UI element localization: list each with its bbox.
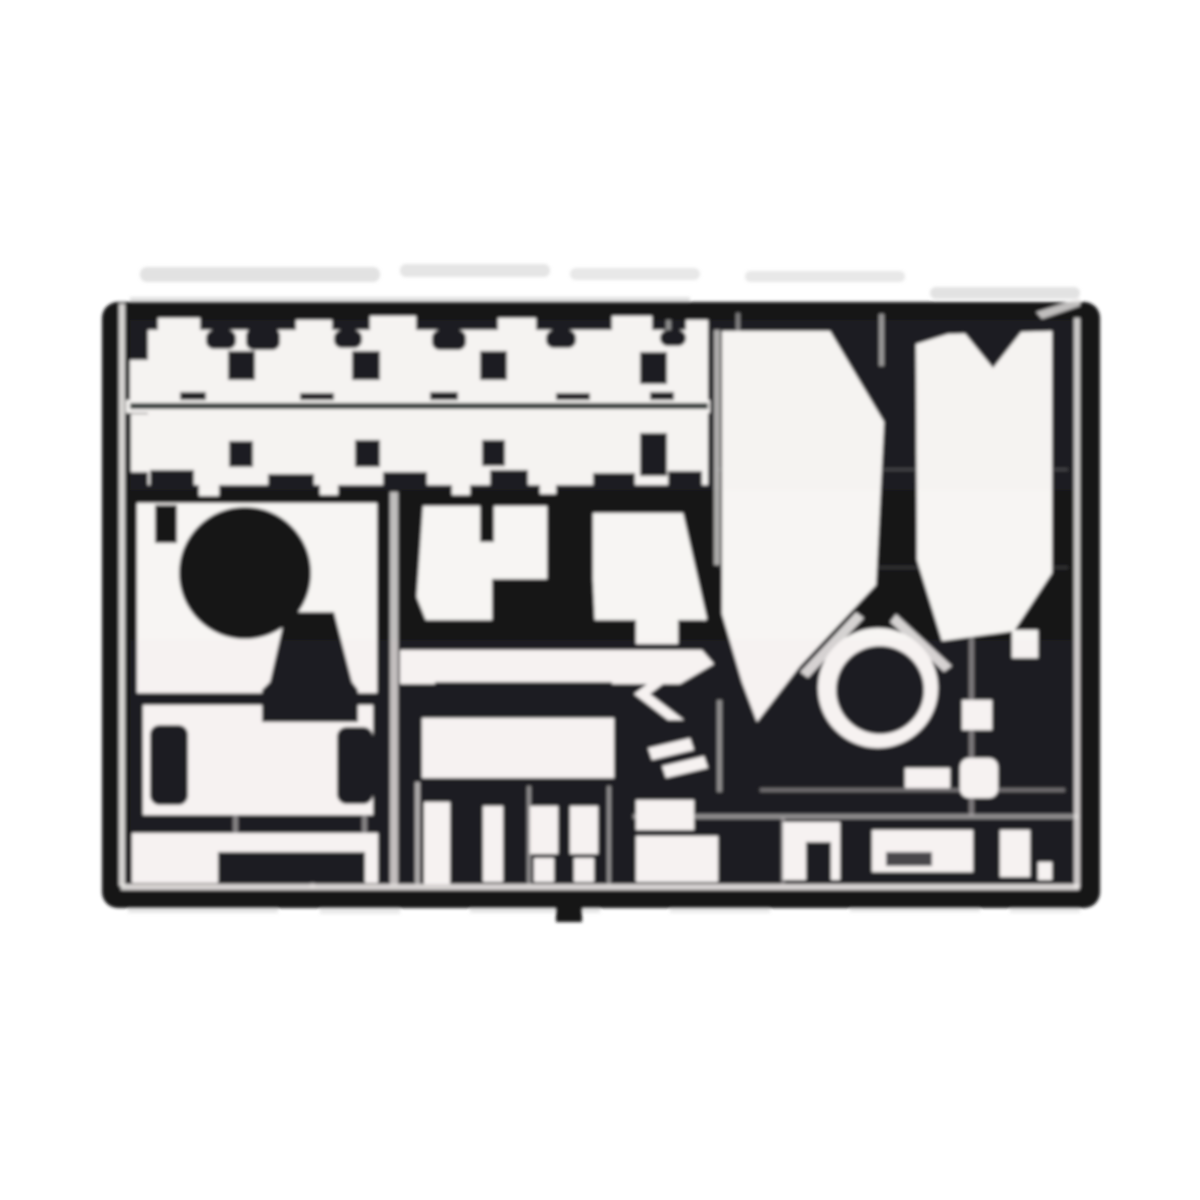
fret-shapes-group xyxy=(102,264,1100,922)
scan-noise-top-1 xyxy=(140,267,380,282)
scan-tint-pink xyxy=(130,640,1080,890)
scan-tint-green xyxy=(130,320,1080,490)
fret-image xyxy=(0,0,1200,1200)
mid-tab-cutout xyxy=(480,506,494,542)
scan-noise-top-2 xyxy=(400,264,550,277)
scan-noise-top-4 xyxy=(745,271,905,282)
scan-noise-top-3 xyxy=(570,268,700,280)
center-bit-square xyxy=(636,608,678,644)
panel-tab-cutout xyxy=(155,505,177,543)
mid-rect-cutout xyxy=(492,579,570,625)
photo-etch-sheet-scan xyxy=(0,0,1200,1200)
scan-noise-top-5 xyxy=(930,287,1080,299)
frame-line-left xyxy=(119,304,125,886)
sprue-tab-bottom xyxy=(556,886,582,922)
